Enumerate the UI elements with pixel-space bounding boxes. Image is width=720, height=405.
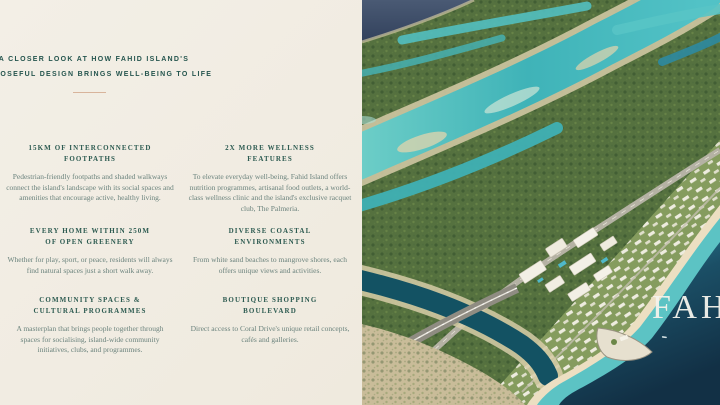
section-wellness: 2X MORE WELLNESS FEATURES To elevate eve… [180,143,360,226]
section-title: COMMUNITY SPACES & CULTURAL PROGRAMMES [6,295,174,317]
section-title: 15KM OF INTERCONNECTED FOOTPATHS [6,143,174,165]
section-body: To elevate everyday well-being, Fahid Is… [186,172,354,214]
brochure-page: A CLOSER LOOK AT HOW FAHID ISLAND'S PURP… [0,0,720,405]
section-footpaths: 15KM OF INTERCONNECTED FOOTPATHS Pedestr… [0,143,180,226]
section-body: A masterplan that brings people together… [6,324,174,356]
feature-sections-grid: 15KM OF INTERCONNECTED FOOTPATHS Pedestr… [0,143,360,356]
section-title: DIVERSE COASTAL ENVIRONMENTS [186,226,354,248]
island-name-overlay: FAH [652,289,720,326]
island-aerial-image: FAH [362,0,720,405]
section-body: From white sand beaches to mangrove shor… [186,255,354,276]
section-body: Whether for play, sport, or peace, resid… [6,255,174,276]
section-body: Pedestrian-friendly footpaths and shaded… [6,172,174,204]
left-text-panel: A CLOSER LOOK AT HOW FAHID ISLAND'S PURP… [0,0,362,405]
section-body: Direct access to Coral Drive's unique re… [186,324,354,345]
section-community: COMMUNITY SPACES & CULTURAL PROGRAMMES A… [0,295,180,356]
headline-line-1: A CLOSER LOOK AT HOW FAHID ISLAND'S [0,52,214,67]
section-greenery: EVERY HOME WITHIN 250M OF OPEN GREENERY … [0,226,180,295]
section-boutique: BOUTIQUE SHOPPING BOULEVARD Direct acces… [180,295,360,356]
page-headline: A CLOSER LOOK AT HOW FAHID ISLAND'S PURP… [0,52,214,82]
headline-line-2: PURPOSEFUL DESIGN BRINGS WELL-BEING TO L… [0,67,214,82]
section-title: EVERY HOME WITHIN 250M OF OPEN GREENERY [6,226,174,248]
aerial-render-svg: FAH [362,0,720,405]
section-title: 2X MORE WELLNESS FEATURES [186,143,354,165]
section-coastal: DIVERSE COASTAL ENVIRONMENTS From white … [180,226,360,295]
headline-divider [73,92,106,93]
section-title: BOUTIQUE SHOPPING BOULEVARD [186,295,354,317]
